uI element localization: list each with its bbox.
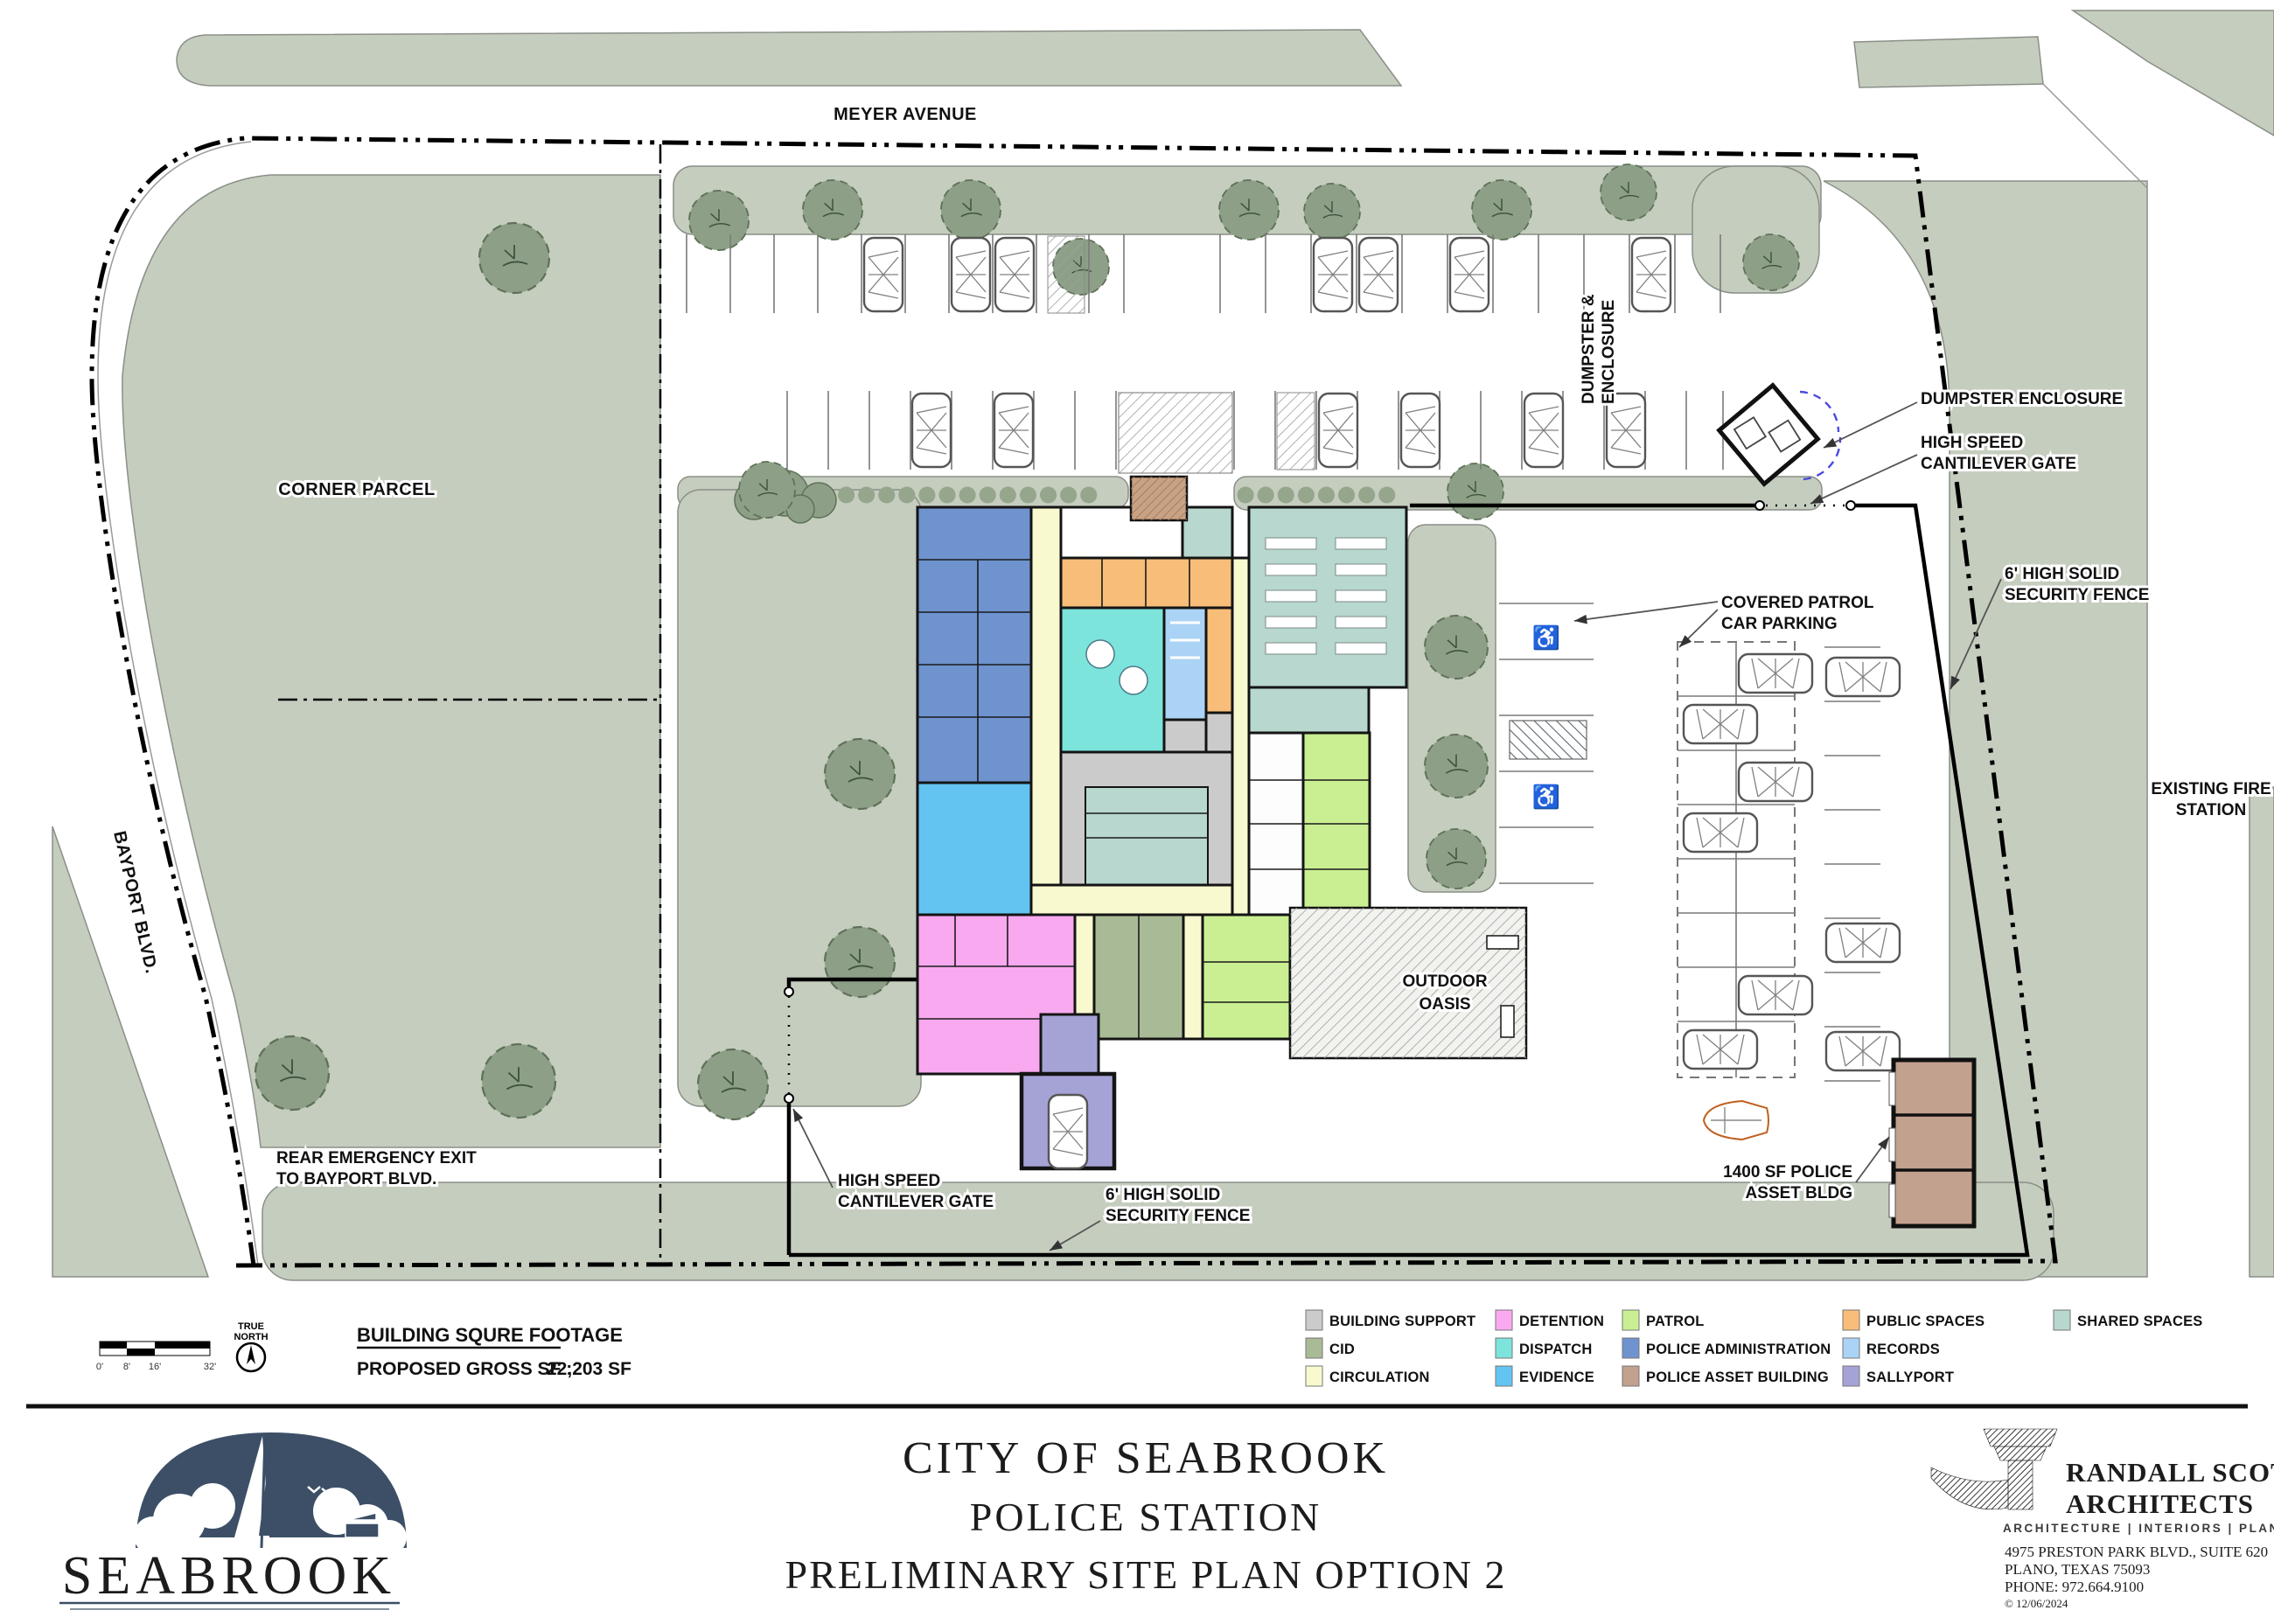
car-glyph: [1359, 238, 1398, 311]
fire-station-boundary-ne: [2043, 84, 2147, 188]
rear-exit-label: REAR EMERGENCY EXIT: [276, 1149, 477, 1167]
legend-swatch: [1622, 1366, 1639, 1386]
car-glyph: [1739, 763, 1812, 801]
car-glyph: [995, 238, 1034, 311]
car-glyph: [1684, 1030, 1757, 1069]
legend-swatch: [1622, 1338, 1639, 1358]
legend-swatch: [2054, 1310, 2070, 1330]
title-line-2: POLICE STATION: [970, 1495, 1322, 1539]
car-glyph: [1826, 658, 1900, 696]
legend-swatch: [1622, 1310, 1639, 1330]
sheet-title: CITY OF SEABROOK POLICE STATION PRELIMIN…: [785, 1433, 1507, 1597]
hatched-walkway-row-b: [1277, 393, 1315, 470]
building-square-footage: BUILDING SQURE FOOTAGE PROPOSED GROSS SF…: [357, 1324, 631, 1379]
car-glyph: [1314, 238, 1352, 311]
legend-swatch: [1843, 1310, 1859, 1330]
tree-icon: [1425, 616, 1488, 679]
outdoor-oasis-label: OUTDOOR: [1402, 972, 1487, 991]
zone-shared-lockers: [1085, 787, 1208, 885]
architect-block: RANDALL SCOTT ARCHITECTS ARCHITECTURE | …: [1931, 1429, 2274, 1610]
svg-text:DUMPSTER &: DUMPSTER &: [1580, 294, 1598, 404]
street-label-bayport: BAYPORT BLVD.: [109, 829, 161, 975]
zone-building-support-small: [1164, 720, 1206, 752]
car-glyph: [952, 238, 990, 311]
legend-swatch: [1496, 1310, 1512, 1330]
zone-public-spaces-east: [1206, 608, 1232, 713]
zone-circulation-east: [1232, 558, 1249, 915]
tree-icon: [1743, 234, 1799, 290]
dumpster-vertical-label: DUMPSTER & ENCLOSURE: [1580, 294, 1618, 404]
zone-circulation-south: [1031, 885, 1232, 915]
scale-tick: 16': [149, 1362, 161, 1372]
zone-patrol-south: [1203, 915, 1290, 1039]
architect-address-1: 4975 PRESTON PARK BLVD., SUITE 620: [2005, 1544, 2268, 1560]
gate-post: [785, 987, 793, 996]
oasis-furniture: [1487, 936, 1518, 949]
true-north-label: TRUE: [238, 1321, 264, 1332]
oasis-furniture: [1501, 1006, 1514, 1037]
street-label-meyer: MEYER AVENUE: [834, 105, 977, 124]
car-glyph: [1524, 394, 1563, 467]
car-glyph: [864, 238, 903, 311]
legend-label: CIRCULATION: [1329, 1370, 1430, 1385]
car-glyph: [1401, 394, 1440, 467]
boat-trailer-glyph: [1704, 1101, 1768, 1140]
architect-name-2: ARCHITECTS: [2066, 1488, 2254, 1519]
legend-label: DISPATCH: [1519, 1342, 1593, 1357]
zone-circulation-southwing-2: [1183, 915, 1203, 1039]
car-glyph: [1826, 924, 1900, 962]
legend-swatch: [1306, 1366, 1322, 1386]
entry-porch-hatch: [1131, 477, 1187, 520]
outdoor-oasis-label-2: OASIS: [1419, 995, 1470, 1014]
legend-label: SHARED SPACES: [2077, 1314, 2203, 1329]
seabrook-wordmark: SEABROOK: [62, 1546, 396, 1606]
tree-icon: [941, 180, 1001, 240]
zone-building-support-small-2: [1206, 713, 1232, 752]
zone-records: [1164, 608, 1206, 720]
svg-text:ENCLOSURE: ENCLOSURE: [1600, 300, 1618, 404]
gate-ne-label: HIGH SPEED: [1921, 434, 2023, 452]
tree-icon: [1601, 164, 1657, 220]
legend-label: DETENTION: [1519, 1314, 1604, 1329]
corner-parcel-label: CORNER PARCEL: [278, 480, 435, 499]
tree-icon: [1426, 829, 1486, 889]
tree-icon: [1472, 180, 1531, 240]
car-glyph: [1632, 238, 1671, 311]
legend-label: SALLYPORT: [1866, 1370, 1954, 1385]
tree-icon: [255, 1036, 329, 1110]
tree-icon: [739, 462, 795, 518]
legend-label: RECORDS: [1866, 1342, 1940, 1357]
meyer-north-strip: [177, 30, 1401, 86]
tree-icon: [825, 739, 895, 809]
tree-icon: [1304, 184, 1360, 240]
legend-swatch: [1496, 1338, 1512, 1358]
zone-sallyport-room: [1041, 1014, 1099, 1074]
tree-icon: [1219, 180, 1279, 240]
site-plan-drawing: ♿ ♿: [0, 0, 2274, 1624]
architect-copyright: © 12/06/2024: [2005, 1597, 2068, 1610]
car-glyph: [1826, 1032, 1900, 1070]
gate-sw-label: HIGH SPEED: [838, 1172, 940, 1190]
wheelchair-icon: ♿: [1532, 784, 1560, 810]
legend-swatch: [1306, 1338, 1322, 1358]
accessible-hatched-stall: [1510, 721, 1587, 759]
north-arrow: TRUE NORTH: [234, 1321, 268, 1371]
fence-e-label: 6' HIGH SOLID: [2005, 565, 2119, 583]
police-asset-building: [1889, 1060, 1974, 1226]
sqft-label: PROPOSED GROSS SF :: [357, 1359, 572, 1379]
north-east-strip: [1854, 37, 2043, 87]
zone-police-administration: [917, 507, 1031, 783]
entry-walkway: [1119, 393, 1232, 473]
true-north-label-2: NORTH: [234, 1332, 268, 1342]
legend-swatch: [1843, 1366, 1859, 1386]
architect-logo-icon: [1931, 1429, 2057, 1509]
car-glyph: [1684, 705, 1757, 743]
tree-icon: [479, 223, 549, 293]
tree-icon: [1447, 464, 1503, 519]
legend-label: BUILDING SUPPORT: [1329, 1314, 1475, 1329]
asset-building-label: 1400 SF POLICE: [1723, 1163, 1852, 1181]
legend-label: POLICE ASSET BUILDING: [1646, 1370, 1829, 1385]
sallyport-vehicle: [1049, 1095, 1087, 1168]
legend-label: POLICE ADMINISTRATION: [1646, 1342, 1831, 1357]
east-parcel-area: [1824, 181, 2147, 1277]
scale-tick: 0': [96, 1362, 103, 1372]
fire-station-label-2: STATION: [2176, 801, 2247, 819]
dumpster-callout-label: DUMPSTER ENCLOSURE: [1921, 390, 2123, 408]
car-glyph: [1739, 976, 1812, 1014]
north-east-corner: [2073, 10, 2274, 136]
dumpster-enclosure: [1719, 386, 1840, 484]
scale-bar: 0' 8' 16' 32': [96, 1342, 216, 1372]
tree-icon: [689, 191, 749, 250]
east-edge-sliver: [2250, 787, 2274, 1277]
asset-building-label-2: ASSET BLDG: [1746, 1184, 1852, 1202]
gate-ne-label-2: CANTILEVER GATE: [1921, 455, 2076, 473]
architect-name-1: RANDALL SCOTT: [2066, 1457, 2274, 1488]
gate-post: [1755, 501, 1764, 510]
fence-s-label-2: SECURITY FENCE: [1106, 1207, 1250, 1225]
site-plan-sheet: ♿ ♿: [0, 0, 2274, 1624]
zone-circulation-west: [1031, 507, 1061, 915]
gate-post: [1846, 501, 1855, 510]
covered-parking-label: COVERED PATROL: [1721, 594, 1874, 612]
sqft-heading: BUILDING SQURE FOOTAGE: [357, 1324, 623, 1346]
scale-tick: 32': [204, 1362, 216, 1372]
title-line-1: CITY OF SEABROOK: [903, 1433, 1389, 1483]
car-glyph: [1739, 654, 1812, 693]
corner-parcel-area: [122, 175, 660, 1147]
fence-e-label-2: SECURITY FENCE: [2005, 586, 2149, 604]
architect-tagline: ARCHITECTURE | INTERIORS | PLANNING: [2003, 1522, 2274, 1535]
legend-swatch: [1306, 1310, 1322, 1330]
covered-parking-label-2: CAR PARKING: [1721, 615, 1838, 633]
rear-exit-label-2: TO BAYPORT BLVD.: [276, 1170, 436, 1188]
fence-s-label: 6' HIGH SOLID: [1106, 1186, 1220, 1204]
hatched-walkway-row-a: [1048, 236, 1085, 313]
wheelchair-icon: ♿: [1532, 624, 1560, 651]
legend-swatch: [1843, 1338, 1859, 1358]
tree-icon: [1425, 735, 1488, 798]
right-column-stalls: [1824, 647, 1880, 1081]
legend-label: PATROL: [1646, 1314, 1705, 1329]
zone-dispatch: [1061, 608, 1164, 752]
car-glyph: [1319, 394, 1357, 467]
legend-label: PUBLIC SPACES: [1866, 1314, 1985, 1329]
car-glyph: [1450, 238, 1489, 311]
tree-icon: [482, 1044, 555, 1118]
tree-icon: [698, 1049, 768, 1119]
zone-shared-vestibule: [1182, 507, 1232, 558]
car-glyph: [912, 394, 951, 467]
legend-swatch: [1496, 1366, 1512, 1386]
seabrook-logo: SEABROOK: [59, 1432, 407, 1609]
tree-icon: [825, 927, 895, 997]
legend-label: CID: [1329, 1342, 1355, 1357]
zone-shared-break: [1249, 687, 1369, 733]
legend-label: EVIDENCE: [1519, 1370, 1594, 1385]
tree-icon: [803, 180, 862, 240]
sqft-value: 22,203 SF: [547, 1359, 631, 1379]
title-line-3: PRELIMINARY SITE PLAN OPTION 2: [785, 1552, 1507, 1597]
scale-tick: 8': [123, 1362, 130, 1372]
fire-station-label: EXISTING FIRE: [2151, 780, 2271, 798]
legend: BUILDING SUPPORT DETENTION PATROL PUBLIC…: [1306, 1310, 2203, 1386]
architect-phone: PHONE: 972.664.9100: [2005, 1579, 2144, 1595]
car-glyph: [1684, 813, 1757, 852]
zone-evidence: [917, 783, 1031, 915]
gate-post: [785, 1094, 793, 1103]
gate-sw-label-2: CANTILEVER GATE: [838, 1193, 994, 1211]
zone-public-spaces-north: [1061, 558, 1232, 608]
architect-address-2: PLANO, TEXAS 75093: [2005, 1561, 2150, 1578]
car-glyph: [994, 394, 1033, 467]
